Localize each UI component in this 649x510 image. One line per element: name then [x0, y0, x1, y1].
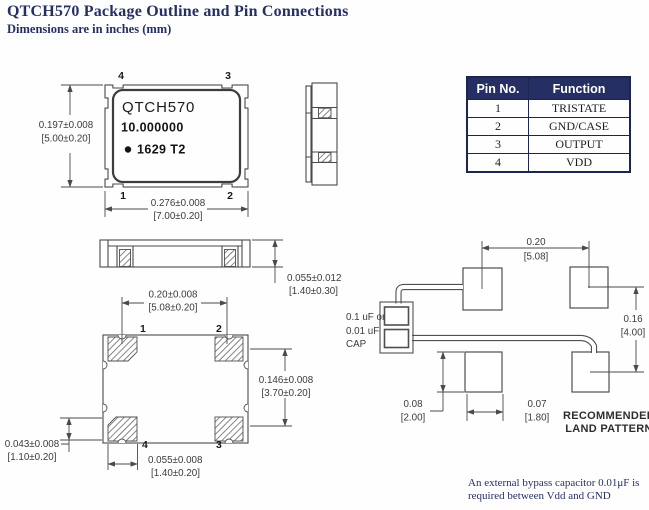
pin-label-3: 3 [225, 70, 231, 82]
castellation-pad [319, 153, 332, 163]
cap-label: 0.01 uF [346, 326, 379, 337]
datasheet-page: QTCH570 Package Outline and Pin Connecti… [0, 0, 649, 510]
note-line: required between Vdd and GND [468, 490, 639, 503]
pin-label-1: 1 [120, 190, 126, 202]
svg-text:0.20: 0.20 [526, 237, 546, 248]
pad-3 [215, 417, 243, 441]
svg-text:[2.00]: [2.00] [401, 413, 426, 424]
trace-gnd-to-cap [412, 338, 594, 353]
svg-text:[5.00±0.20]: [5.00±0.20] [42, 134, 91, 145]
pin-function: GND/CASE [529, 118, 631, 136]
castellation-pad [225, 250, 236, 267]
svg-text:[1.40±0.30]: [1.40±0.30] [289, 286, 338, 297]
land-pattern-label: LAND PATTERN [565, 423, 649, 435]
package-side-view-horizontal: 0.055±0.012 [1.40±0.30] [100, 240, 341, 297]
svg-text:0.055±0.012: 0.055±0.012 [287, 273, 341, 284]
land-pad-4 [465, 352, 502, 392]
pin-label-4: 4 [118, 70, 124, 82]
pin-number: 4 [467, 154, 529, 173]
marking-frequency: 10.000000 [121, 121, 184, 135]
svg-text:0.276±0.008: 0.276±0.008 [151, 198, 206, 209]
svg-text:0.08: 0.08 [403, 399, 423, 410]
table-row: 4 VDD [467, 154, 630, 173]
dim-body-height: 0.197±0.008 [5.00±0.20] [39, 85, 103, 187]
svg-text:[1.40±0.20]: [1.40±0.20] [151, 468, 200, 479]
svg-text:[1.10±0.20]: [1.10±0.20] [8, 452, 57, 463]
table-row: 1 TRISTATE [467, 100, 630, 118]
pin-number: 2 [467, 118, 529, 136]
pin-number: 1 [467, 100, 529, 118]
pad-2 [215, 337, 243, 361]
svg-text:[7.00±0.20]: [7.00±0.20] [154, 211, 203, 222]
castellation-pad [319, 108, 332, 118]
svg-text:0.16: 0.16 [623, 314, 643, 325]
svg-text:0.20±0.008: 0.20±0.008 [149, 290, 199, 301]
pad-4 [108, 417, 137, 441]
pin-function-table: Pin No. Function 1 TRISTATE 2 GND/CASE 3… [466, 76, 631, 173]
col-header-function: Function [529, 77, 631, 100]
dim-body-height: 0.146±0.008 [3.70±0.20] [250, 349, 314, 426]
pin-number: 3 [467, 136, 529, 154]
table-row: 3 OUTPUT [467, 136, 630, 154]
trace-vdd-to-cap [399, 287, 464, 304]
svg-text:[4.00]: [4.00] [621, 328, 646, 339]
pin-label-1: 1 [140, 323, 146, 335]
lid-edge [306, 86, 311, 182]
svg-text:[5.08]: [5.08] [524, 252, 549, 263]
cap-label: 0.1 uF or [346, 312, 386, 323]
pin-function: OUTPUT [529, 136, 631, 154]
marking-datecode: 1629 T2 [137, 143, 186, 157]
pin-label-4: 4 [142, 439, 148, 451]
dim-thickness: 0.055±0.012 [1.40±0.30] [252, 240, 341, 297]
dim-pad-height: 0.043±0.008 [1.10±0.20] [5, 418, 102, 463]
cap-label: CAP [346, 339, 367, 350]
pad-1 [108, 337, 137, 361]
svg-text:0.07: 0.07 [527, 399, 546, 410]
svg-text:0.043±0.008: 0.043±0.008 [5, 439, 60, 450]
package-side-view-vertical [306, 83, 337, 185]
land-pattern-label: RECOMMENDED [563, 410, 649, 422]
pin1-indicator-dot [125, 146, 131, 152]
land-pad-1 [463, 268, 502, 310]
svg-text:0.146±0.008: 0.146±0.008 [259, 375, 314, 386]
land-pattern: 0.1 uF or 0.01 uF CAP 0.20 [5.08] 0.16 [… [346, 237, 649, 435]
dim-pad-width: 0.055±0.008 [1.40±0.20] [108, 444, 203, 479]
dim-pad-pitch: 0.20±0.008 [5.08±0.20] [122, 290, 227, 345]
castellation-pad [120, 250, 131, 267]
pin-function: VDD [529, 154, 631, 173]
pin-label-2: 2 [216, 323, 222, 335]
svg-text:[3.70±0.20]: [3.70±0.20] [262, 388, 311, 399]
marking-model: QTCH570 [122, 99, 195, 116]
dim-land-pad-width: 0.07 [1.80] [467, 394, 550, 424]
bypass-capacitor-symbol [380, 302, 413, 353]
pin-label-3: 3 [216, 439, 222, 451]
pin-function: TRISTATE [529, 100, 631, 118]
package-top-view: QTCH570 10.000000 1629 T2 4 3 1 2 0.197±… [39, 70, 249, 222]
svg-text:[5.08±0.20]: [5.08±0.20] [149, 303, 198, 314]
pin-label-2: 2 [227, 190, 233, 202]
package-bottom-view: 1 2 4 3 0.20±0.008 [5.08±0.20] 0.146±0.0… [5, 290, 314, 480]
bypass-capacitor-note: An external bypass capacitor 0.01μF is r… [468, 477, 639, 503]
col-header-pin: Pin No. [467, 77, 529, 100]
svg-text:0.055±0.008: 0.055±0.008 [148, 455, 203, 466]
table-row: 2 GND/CASE [467, 118, 630, 136]
svg-text:[1.80]: [1.80] [525, 413, 550, 424]
side-body [312, 83, 337, 185]
dim-land-pad-height: 0.08 [2.00] [401, 352, 464, 424]
note-line: An external bypass capacitor 0.01μF is [468, 477, 639, 490]
svg-text:0.197±0.008: 0.197±0.008 [39, 120, 94, 131]
